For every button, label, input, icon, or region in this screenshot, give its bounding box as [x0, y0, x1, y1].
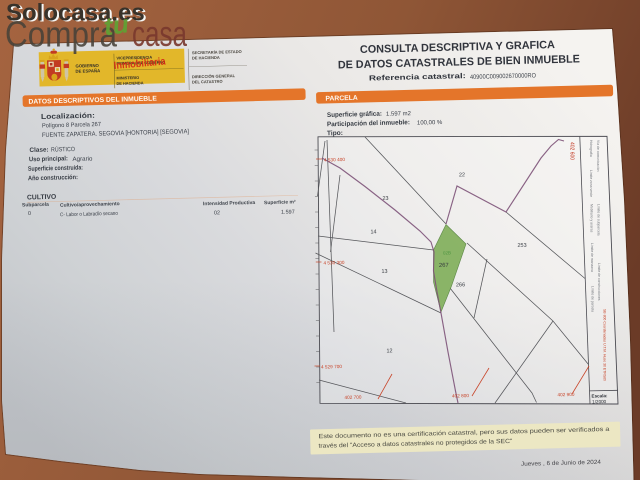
- svg-text:253: 253: [517, 243, 526, 249]
- svg-text:4 530 300: 4 530 300: [323, 260, 345, 266]
- svg-text:Límite de subparcela: Límite de subparcela: [597, 204, 601, 236]
- svg-text:Año construcción:: Año construcción:: [28, 174, 78, 182]
- svg-text:Superficie m²: Superficie m²: [264, 199, 296, 206]
- svg-text:1/2000: 1/2000: [592, 399, 607, 404]
- svg-text:267: 267: [439, 263, 449, 269]
- svg-text:DE HACIENDA: DE HACIENDA: [192, 55, 220, 61]
- svg-text:22: 22: [459, 172, 465, 178]
- svg-text:Localización:: Localización:: [41, 111, 95, 121]
- svg-text:402 600: 402 600: [569, 142, 575, 160]
- svg-text:Subparcela: Subparcela: [22, 202, 49, 209]
- svg-text:DEL CATASTRO: DEL CATASTRO: [192, 79, 223, 85]
- svg-text:Límite zona verde: Límite zona verde: [589, 170, 593, 197]
- svg-text:DE HACIENDA: DE HACIENDA: [116, 80, 143, 86]
- svg-text:Superficie construida:: Superficie construida:: [28, 164, 83, 172]
- svg-text:Agrario: Agrario: [72, 155, 93, 163]
- svg-text:12: 12: [386, 348, 392, 354]
- svg-text:Límite de parcela: Límite de parcela: [591, 286, 595, 312]
- svg-text:14: 14: [370, 229, 376, 235]
- svg-text:13: 13: [381, 269, 387, 275]
- svg-text:DE ESPAÑA: DE ESPAÑA: [75, 68, 100, 74]
- svg-text:402 700: 402 700: [344, 395, 362, 400]
- svg-text:1.597 m2: 1.597 m2: [386, 111, 412, 118]
- svg-text:Tipo:: Tipo:: [327, 130, 343, 137]
- svg-text:402 900: 402 900: [557, 392, 575, 397]
- svg-text:tu: tu: [102, 10, 131, 41]
- svg-text:RÚSTICO: RÚSTICO: [51, 146, 75, 154]
- svg-text:Límite de manzana: Límite de manzana: [590, 243, 594, 272]
- svg-text:Superficie gráfica:: Superficie gráfica:: [327, 111, 382, 119]
- svg-text:Compra: Compra: [5, 14, 118, 55]
- svg-text:02B: 02B: [443, 250, 451, 255]
- svg-text:Mobiliario y aceras: Mobiliario y aceras: [590, 204, 594, 233]
- svg-text:4 530 400: 4 530 400: [324, 157, 346, 163]
- svg-text:Escala:: Escala:: [591, 393, 608, 398]
- svg-text:CULTIVO: CULTIVO: [27, 194, 56, 202]
- svg-text:PARCELA: PARCELA: [325, 95, 358, 103]
- svg-text:402 800: 402 800: [452, 393, 470, 398]
- svg-text:Vía de comunicación: Vía de comunicación: [596, 140, 600, 172]
- svg-text:Clase:: Clase:: [29, 147, 48, 154]
- svg-text:02: 02: [214, 210, 220, 216]
- svg-text:casa: casa: [132, 13, 188, 54]
- svg-text:23: 23: [382, 196, 388, 202]
- svg-text:266: 266: [456, 282, 465, 288]
- svg-text:0: 0: [28, 211, 31, 217]
- svg-text:4 529 700: 4 529 700: [321, 364, 343, 370]
- svg-text:Hidrografía: Hidrografía: [589, 140, 593, 157]
- svg-text:Uso principal:: Uso principal:: [29, 155, 68, 163]
- svg-text:SB 806 Coordenadas U.T.M. Huso: SB 806 Coordenadas U.T.M. Huso 30 ETRS89: [603, 309, 607, 381]
- svg-text:Límite de construcciones: Límite de construcciones: [597, 263, 601, 301]
- svg-text:1.597: 1.597: [281, 209, 295, 215]
- svg-text:100,00 %: 100,00 %: [417, 120, 443, 127]
